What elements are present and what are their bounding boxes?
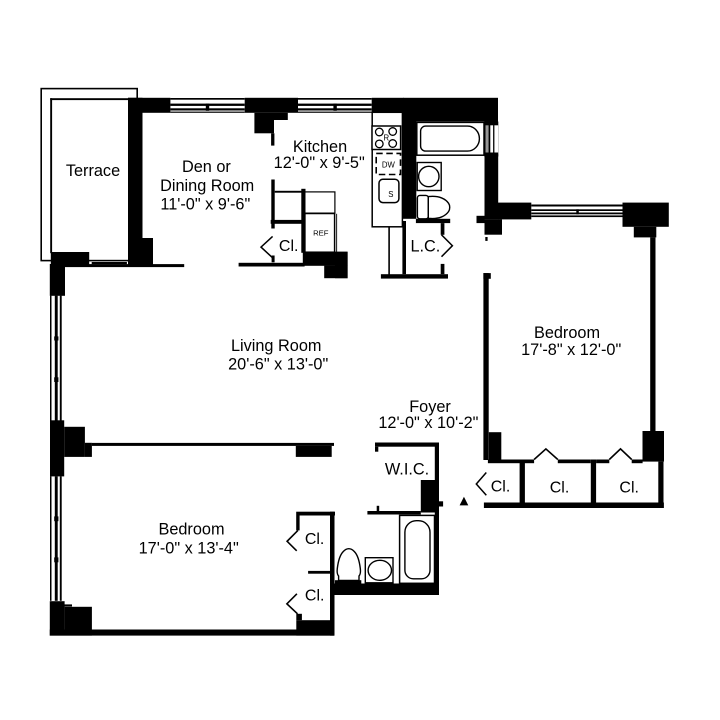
svg-text:S: S [388, 190, 393, 199]
svg-text:Cl.: Cl. [305, 531, 325, 548]
svg-text:Terrace: Terrace [66, 162, 120, 180]
svg-text:12'-0" x 9'-5": 12'-0" x 9'-5" [274, 154, 365, 172]
svg-text:17'-0" x 13'-4": 17'-0" x 13'-4" [139, 540, 239, 558]
svg-text:Dining Room: Dining Room [160, 177, 254, 195]
svg-text:REF: REF [313, 229, 329, 238]
svg-text:DW: DW [382, 160, 396, 169]
svg-text:W.I.C.: W.I.C. [385, 461, 429, 479]
svg-text:Den or: Den or [182, 158, 231, 176]
svg-text:11'-0" x 9'-6": 11'-0" x 9'-6" [160, 195, 250, 213]
svg-text:Living Room: Living Room [231, 337, 322, 355]
svg-text:R: R [383, 133, 389, 142]
svg-text:Bedroom: Bedroom [158, 521, 224, 539]
svg-text:Cl.: Cl. [279, 238, 299, 255]
svg-text:Cl.: Cl. [305, 587, 325, 604]
svg-text:Cl.: Cl. [619, 480, 639, 497]
svg-text:Bedroom: Bedroom [534, 324, 600, 342]
svg-text:Cl.: Cl. [550, 480, 570, 497]
svg-text:17'-8" x 12'-0": 17'-8" x 12'-0" [521, 341, 621, 359]
svg-text:L.C.: L.C. [410, 237, 440, 255]
svg-text:20'-6" x 13'-0": 20'-6" x 13'-0" [228, 355, 328, 373]
svg-text:12'-0" x 10'-2": 12'-0" x 10'-2" [378, 414, 478, 432]
svg-text:Cl.: Cl. [491, 478, 511, 495]
